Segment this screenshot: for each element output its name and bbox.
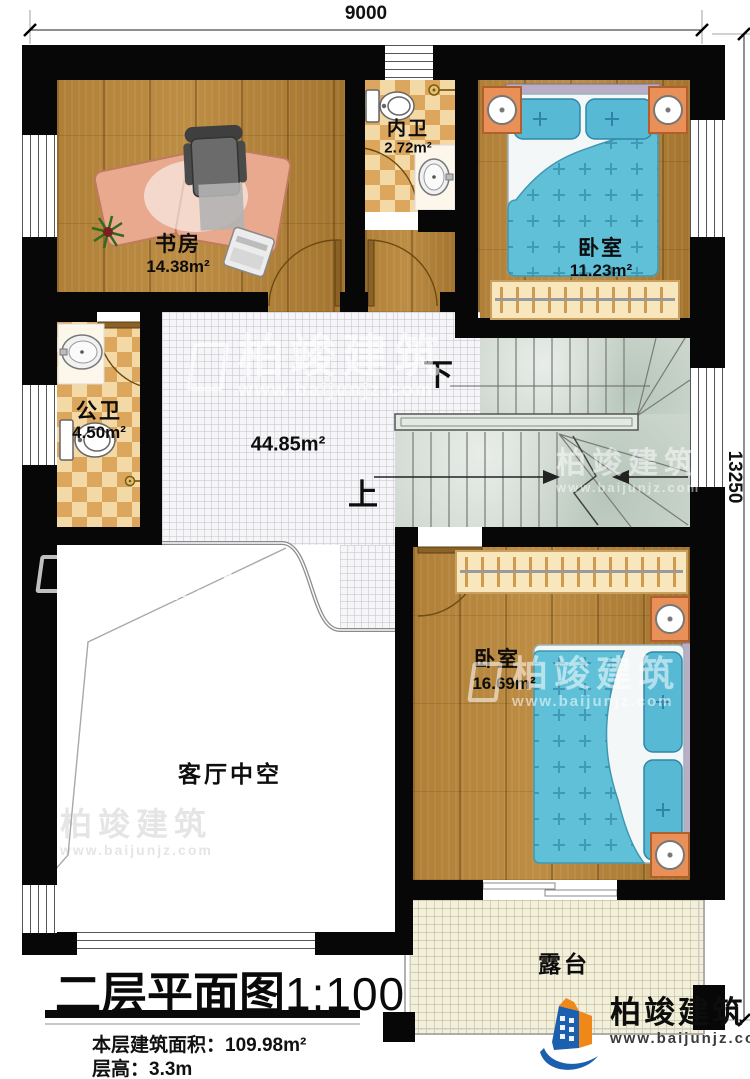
brand-logo-icon <box>538 996 602 1070</box>
bedroom2-name: 卧室 <box>474 643 520 673</box>
wall-publicbath-right <box>140 322 162 527</box>
study-door <box>269 240 341 306</box>
inner-bath-name: 内卫 <box>387 114 429 141</box>
window-left-bath <box>22 385 57 465</box>
bedroom1-area: 11.23m² <box>570 261 632 281</box>
nightstand <box>648 86 688 134</box>
window-right-stairs <box>690 368 725 487</box>
wall-living-bottom-2 <box>315 932 400 955</box>
void-outline <box>34 548 286 894</box>
nightstand <box>482 86 522 134</box>
lamp-icon <box>655 604 685 634</box>
lamp-icon <box>653 95 683 125</box>
floor-height-label: 层高： <box>92 1059 149 1079</box>
wall-bedroom2-bottom-2 <box>617 880 690 900</box>
public-bath-sink <box>58 324 104 384</box>
inner-bath-area: 2.72m² <box>384 140 432 157</box>
bedroom1-name: 卧室 <box>578 232 624 262</box>
stairs-direction-lines <box>374 386 688 525</box>
terrace-name: 露台 <box>538 945 590 979</box>
floor-height-value: 3.3m <box>149 1059 192 1079</box>
public-bath-name: 公卫 <box>76 395 122 425</box>
wall-left-3 <box>22 465 57 885</box>
wall-left-1 <box>22 80 57 135</box>
wall-hall-top-2 <box>340 292 368 312</box>
hall-void-curve <box>162 543 397 630</box>
brand-name: 柏竣建筑 <box>610 996 750 1030</box>
floor-plan-page: 书房 14.38m² 内卫 2.72m² 卧室 11.23m² 公卫 4.50m… <box>0 0 750 1079</box>
wall-publicbath-top-1 <box>57 310 97 322</box>
wall-study-right <box>345 80 365 312</box>
wall-bedroom1-left <box>455 80 478 318</box>
window-left-study <box>22 135 57 237</box>
bedroom1-wardrobe <box>490 280 680 320</box>
wall-bedroom1-bottom <box>455 318 690 338</box>
bedroom2-area: 16.69m² <box>472 674 535 694</box>
wall-stairs-bottom-1 <box>395 527 418 547</box>
dimension-width: 9000 <box>345 3 387 25</box>
brand-url: www.baijunjz.com <box>610 1030 750 1047</box>
corridor-door <box>368 240 437 306</box>
study-area: 14.38m² <box>146 257 209 277</box>
wall-stairs-bottom-2 <box>482 527 690 547</box>
brand-logo: 柏竣建筑 www.baijunjz.com <box>538 996 750 1070</box>
stairs-up-label: 上 <box>348 470 378 514</box>
floor-area-stat: 本层建筑面积：109.98m² <box>92 1030 306 1057</box>
stairs-handrail <box>395 414 638 430</box>
floor-height-stat: 层高：3.3m <box>92 1054 192 1079</box>
floor-area-label: 本层建筑面积： <box>92 1035 225 1056</box>
window-left-living <box>22 885 57 933</box>
window-top <box>385 45 433 80</box>
stairs-down-label: 下 <box>423 350 453 394</box>
title-underline <box>45 1010 360 1018</box>
lamp-icon <box>487 95 517 125</box>
title-underline-thin <box>45 1023 360 1025</box>
nightstand <box>650 832 690 878</box>
dimension-height: 13250 <box>723 451 745 504</box>
shower-head-icon <box>429 85 457 95</box>
window-right-bedroom1 <box>690 120 725 237</box>
bedroom2-wardrobe <box>455 550 688 594</box>
window-bottom-living <box>77 932 315 955</box>
wall-innerbath-bottom-1 <box>345 210 352 232</box>
wall-right-1 <box>690 45 725 120</box>
wall-top-right <box>433 45 692 80</box>
lamp-icon <box>655 840 685 870</box>
public-bath-area: 4.50m² <box>72 423 126 443</box>
floor-area-value: 109.98m² <box>225 1035 306 1056</box>
wall-bedroom2-bottom-1 <box>395 880 483 900</box>
wall-hall-top-1 <box>57 292 268 312</box>
hall-area: 44.85m² <box>251 434 326 457</box>
living-void-name: 客厅中空 <box>178 755 282 789</box>
wardrobe-rod <box>460 570 683 573</box>
wall-innerbath-bottom-2 <box>418 210 455 232</box>
wall-left-2 <box>22 237 57 385</box>
wardrobe-rod <box>495 298 675 301</box>
wall-top-left <box>22 45 385 80</box>
wall-hall-top-3 <box>440 292 455 312</box>
wall-publicbath-bottom <box>57 527 162 545</box>
wall-right-2 <box>690 237 725 368</box>
nightstand <box>650 596 690 642</box>
study-name: 书房 <box>155 228 201 258</box>
terrace-sliding-door <box>483 883 617 896</box>
wall-living-bottom-1 <box>22 932 77 955</box>
wall-right-3 <box>690 487 725 900</box>
wall-publicbath-top-2 <box>140 310 162 322</box>
